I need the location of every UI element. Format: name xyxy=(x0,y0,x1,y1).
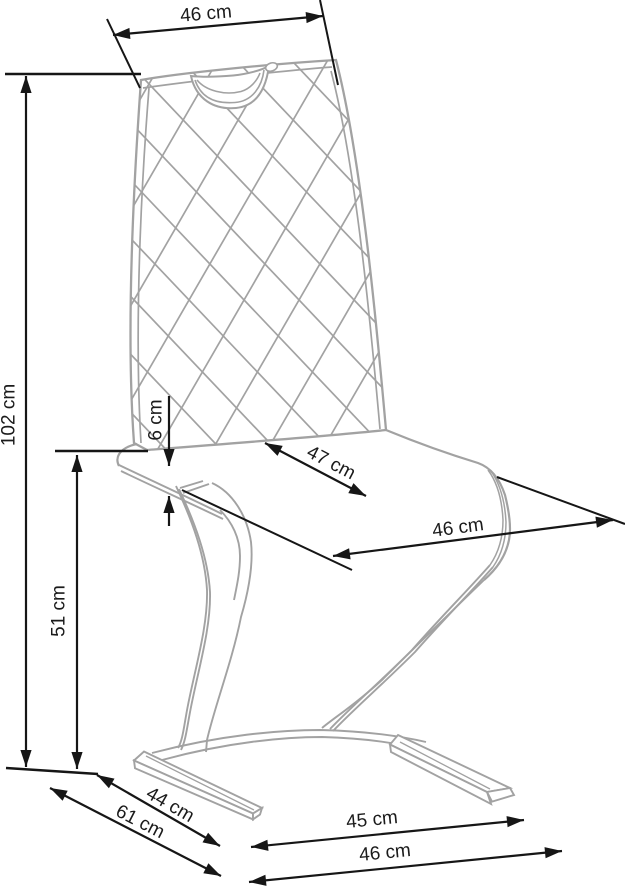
svg-text:102 cm: 102 cm xyxy=(0,384,20,446)
svg-text:51 cm: 51 cm xyxy=(49,585,70,637)
svg-text:6 cm: 6 cm xyxy=(146,399,167,440)
svg-text:46 cm: 46 cm xyxy=(179,1,232,26)
